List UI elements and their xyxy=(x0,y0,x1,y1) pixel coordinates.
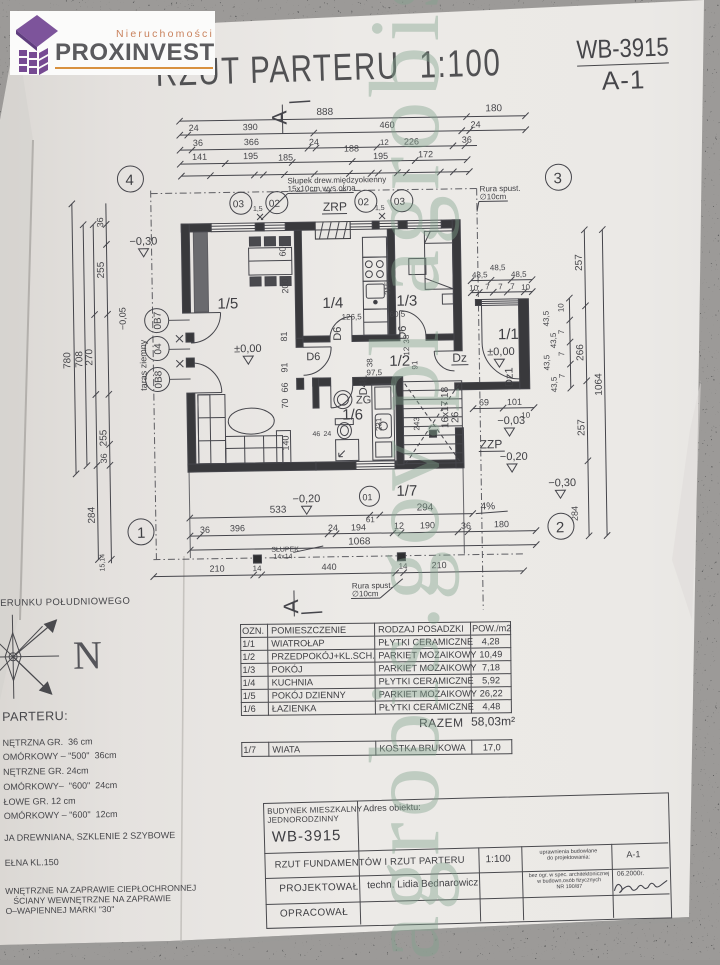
svg-text:210: 210 xyxy=(210,564,225,574)
svg-text:04: 04 xyxy=(153,343,164,355)
svg-text:43,5: 43,5 xyxy=(542,354,551,370)
svg-text:36: 36 xyxy=(193,138,203,148)
svg-text:1/1: 1/1 xyxy=(498,326,519,343)
svg-text:36: 36 xyxy=(462,135,472,145)
svg-text:48,5: 48,5 xyxy=(511,270,527,279)
svg-text:2: 2 xyxy=(556,519,565,536)
svg-text:Dz1: Dz1 xyxy=(503,367,515,387)
svg-text:taras ziemny: taras ziemny xyxy=(138,339,149,391)
svg-text:141: 141 xyxy=(192,152,207,162)
svg-text:226: 226 xyxy=(404,136,419,146)
svg-text:48,5: 48,5 xyxy=(472,270,488,279)
svg-text:02: 02 xyxy=(269,199,281,210)
svg-text:7: 7 xyxy=(558,373,567,378)
svg-text:02: 02 xyxy=(358,197,370,208)
svg-text:460: 460 xyxy=(380,120,395,130)
svg-text:257: 257 xyxy=(576,419,587,436)
svg-text:38: 38 xyxy=(402,334,411,344)
svg-text:60: 60 xyxy=(278,246,288,256)
svg-text:±0,00: ±0,00 xyxy=(234,343,262,355)
svg-text:440: 440 xyxy=(321,562,336,572)
svg-text:266: 266 xyxy=(575,344,586,361)
svg-text:396: 396 xyxy=(230,523,245,533)
svg-text:−0,20: −0,20 xyxy=(292,493,320,505)
svg-text:243: 243 xyxy=(412,417,421,431)
svg-text:7: 7 xyxy=(557,329,566,334)
svg-text:7: 7 xyxy=(498,282,503,291)
svg-text:10: 10 xyxy=(521,283,531,292)
svg-text:194: 194 xyxy=(351,522,366,532)
svg-text:70: 70 xyxy=(280,398,290,408)
svg-text:81: 81 xyxy=(279,331,289,341)
svg-text:A: A xyxy=(280,599,303,613)
svg-text:∅10cm: ∅10cm xyxy=(480,192,507,201)
svg-text:4: 4 xyxy=(125,172,134,189)
svg-text:140: 140 xyxy=(280,435,290,450)
svg-text:−0,30: −0,30 xyxy=(129,236,157,248)
svg-text:195: 195 xyxy=(373,151,388,161)
svg-text:38: 38 xyxy=(365,358,374,368)
svg-text:284: 284 xyxy=(87,506,98,523)
svg-text:15x10cm wys.okna: 15x10cm wys.okna xyxy=(288,183,357,193)
svg-text:91: 91 xyxy=(410,360,419,370)
svg-text:10: 10 xyxy=(469,284,479,293)
svg-text:Dz: Dz xyxy=(452,351,467,365)
svg-text:7: 7 xyxy=(510,282,515,291)
svg-text:1/5: 1/5 xyxy=(217,295,238,312)
svg-text:1,5: 1,5 xyxy=(375,205,385,212)
svg-text:24: 24 xyxy=(309,137,319,147)
svg-text:60,5: 60,5 xyxy=(390,310,406,319)
svg-text:1: 1 xyxy=(137,525,146,542)
svg-text:1,5: 1,5 xyxy=(253,206,263,213)
svg-text:69: 69 xyxy=(479,397,489,407)
svg-text:7: 7 xyxy=(485,282,490,291)
svg-text:0B7: 0B7 xyxy=(153,311,164,329)
svg-text:1064: 1064 xyxy=(594,373,605,396)
svg-text:26: 26 xyxy=(450,411,461,423)
svg-text:1/7: 1/7 xyxy=(396,482,417,499)
svg-text:ZRP: ZRP xyxy=(323,200,347,214)
svg-text:36: 36 xyxy=(200,525,210,535)
svg-text:888: 888 xyxy=(316,107,333,118)
svg-text:−0,30: −0,30 xyxy=(548,477,576,489)
svg-text:210: 210 xyxy=(431,560,446,570)
svg-text:48,5: 48,5 xyxy=(490,263,506,272)
svg-text:0B8: 0B8 xyxy=(153,370,164,388)
svg-text:284: 284 xyxy=(570,506,580,521)
svg-text:24: 24 xyxy=(189,123,199,133)
svg-text:ZG: ZG xyxy=(356,394,371,406)
svg-text:1/4: 1/4 xyxy=(322,295,343,312)
svg-text:3: 3 xyxy=(553,170,562,187)
svg-text:36: 36 xyxy=(95,217,105,227)
svg-text:257: 257 xyxy=(574,254,585,271)
svg-text:126,5: 126,5 xyxy=(342,312,363,321)
svg-text:200: 200 xyxy=(280,278,290,293)
svg-text:1068: 1068 xyxy=(348,536,371,547)
svg-text:10: 10 xyxy=(556,303,565,313)
svg-text:66: 66 xyxy=(280,382,290,392)
svg-text:390: 390 xyxy=(243,122,258,132)
svg-text:36: 36 xyxy=(461,521,471,531)
svg-text:46: 46 xyxy=(312,431,320,438)
svg-text:36: 36 xyxy=(99,453,109,463)
svg-text:780: 780 xyxy=(62,352,73,369)
svg-text:24: 24 xyxy=(328,523,338,533)
svg-text:231: 231 xyxy=(374,417,383,431)
svg-text:4%: 4% xyxy=(481,501,496,512)
svg-text:366: 366 xyxy=(244,137,259,147)
svg-text:43,5: 43,5 xyxy=(542,310,551,326)
svg-text:24: 24 xyxy=(471,119,481,129)
svg-text:101: 101 xyxy=(507,397,522,407)
svg-text:180: 180 xyxy=(485,103,502,114)
svg-text:D6: D6 xyxy=(332,327,344,341)
svg-text:03: 03 xyxy=(233,199,245,210)
svg-text:255: 255 xyxy=(98,429,109,446)
svg-text:7: 7 xyxy=(557,351,566,356)
svg-text:172: 172 xyxy=(418,149,433,159)
svg-text:255: 255 xyxy=(96,261,107,278)
svg-text:12: 12 xyxy=(402,346,411,356)
svg-text:97,5: 97,5 xyxy=(366,368,382,377)
svg-text:01: 01 xyxy=(362,492,372,502)
svg-text:−0,05: −0,05 xyxy=(117,307,127,330)
svg-text:−0,20: −0,20 xyxy=(500,451,528,463)
svg-text:61: 61 xyxy=(366,515,376,524)
svg-text:24: 24 xyxy=(323,431,331,438)
svg-text:533: 533 xyxy=(270,505,287,516)
svg-text:A: A xyxy=(268,110,291,124)
svg-text:1/6: 1/6 xyxy=(342,406,363,423)
svg-text:315: 315 xyxy=(383,281,392,295)
svg-text:190: 190 xyxy=(420,520,435,530)
svg-text:∅10cm: ∅10cm xyxy=(352,589,379,598)
svg-text:14: 14 xyxy=(253,564,263,573)
svg-text:188: 188 xyxy=(344,143,359,153)
svg-text:91: 91 xyxy=(279,362,289,372)
svg-text:180: 180 xyxy=(494,519,509,529)
svg-text:14x14: 14x14 xyxy=(273,553,292,560)
svg-text:185: 185 xyxy=(278,152,293,162)
svg-text:03: 03 xyxy=(394,197,406,208)
svg-text:ZZP: ZZP xyxy=(480,437,503,451)
svg-text:294: 294 xyxy=(417,502,434,513)
svg-text:D6: D6 xyxy=(306,351,320,363)
svg-text:12: 12 xyxy=(380,138,390,147)
svg-text:10: 10 xyxy=(521,411,531,420)
svg-text:195: 195 xyxy=(243,151,258,161)
svg-text:270: 270 xyxy=(84,348,95,365)
svg-text:D4Ł: D4Ł xyxy=(358,375,370,395)
svg-text:12: 12 xyxy=(394,521,404,531)
svg-text:1/3: 1/3 xyxy=(396,292,417,309)
svg-text:±0,00: ±0,00 xyxy=(487,346,515,358)
svg-text:15,14: 15,14 xyxy=(99,554,106,572)
svg-text:14: 14 xyxy=(398,562,408,571)
